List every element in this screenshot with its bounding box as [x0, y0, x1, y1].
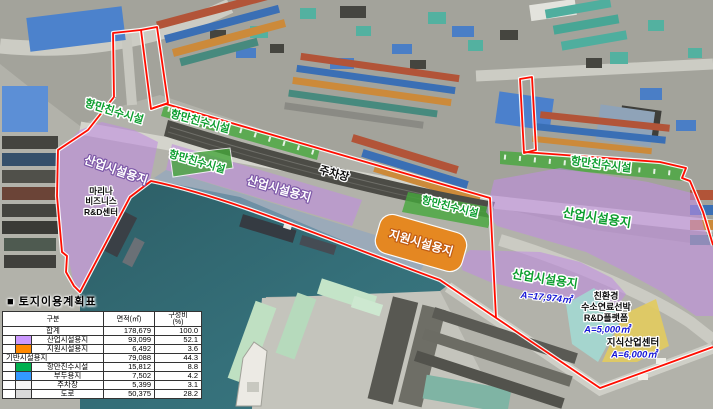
- cell-ratio: 3.6: [155, 345, 202, 354]
- cell-area: 79,088: [104, 354, 155, 363]
- label-marina-line1: 마리나: [89, 186, 113, 196]
- cell-indent: [3, 336, 16, 345]
- cell-ratio: 44.3: [155, 354, 202, 363]
- table-row: 도로 50,375 28.2: [3, 390, 202, 399]
- table-row: 주차장 5,399 3.1: [3, 381, 202, 390]
- cell-ratio: 3.1: [155, 381, 202, 390]
- title-bullet-icon: ■: [7, 296, 15, 308]
- cell-swatch-waterfront: [16, 363, 32, 372]
- cell-indent: [3, 372, 16, 381]
- header-category: 구분: [3, 312, 104, 327]
- cell-label: 항만친수시설: [32, 363, 104, 372]
- cell-indent: [3, 345, 16, 354]
- cell-label: 주차장: [32, 381, 104, 390]
- table-row: 부두용지 7,502 4.2: [3, 372, 202, 381]
- cell-label: 합계: [3, 327, 104, 336]
- table-row: 지원시설용지 6,492 3.6: [3, 345, 202, 354]
- cell-indent: [3, 363, 16, 372]
- label-knowledge-area: A=6,000㎡: [610, 349, 659, 361]
- land-use-table: 구분 면적(㎡) 구성비(%) 합계 178,679 100.0 산업시설용지 …: [2, 311, 202, 399]
- cell-swatch-support: [16, 345, 32, 354]
- cell-area: 7,502: [104, 372, 155, 381]
- land-use-plan-map: 항만친수시설 항만친수시설 항만친수시설 항만친수시설 항만친수시설 산업시설용…: [0, 0, 713, 409]
- table-row: 기반시설용지 79,088 44.3: [3, 354, 202, 363]
- label-eco-line1: 친환경: [594, 290, 619, 301]
- cell-label: 기반시설용지: [3, 354, 104, 363]
- cell-label: 산업시설용지: [32, 336, 104, 345]
- label-eco-line3: R&D플랫폼: [584, 312, 628, 323]
- cell-label: 도로: [32, 390, 104, 399]
- cell-area: 50,375: [104, 390, 155, 399]
- cell-ratio: 52.1: [155, 336, 202, 345]
- land-use-table-panel: ■ 토지이용계획표 구분 면적(㎡) 구성비(%) 합계 178,679 100…: [2, 293, 208, 399]
- cell-swatch-industrial: [16, 336, 32, 345]
- label-marina-line3: R&D센터: [84, 207, 118, 217]
- table-row: 항만친수시설 15,812 8.8: [3, 363, 202, 372]
- label-knowledge-name: 지식산업센터: [607, 337, 659, 349]
- cell-ratio: 8.8: [155, 363, 202, 372]
- cell-indent: [3, 381, 16, 390]
- table-title-text: 토지이용계획표: [19, 296, 97, 308]
- cell-ratio: 4.2: [155, 372, 202, 381]
- cell-label: 지원시설용지: [32, 345, 104, 354]
- table-row: 산업시설용지 93,099 52.1: [3, 336, 202, 345]
- label-eco-area: A=5,000㎡: [583, 324, 632, 336]
- table-title: ■ 토지이용계획표: [7, 293, 208, 309]
- label-marina-line2: 비즈니스: [85, 196, 116, 206]
- cell-area: 93,099: [104, 336, 155, 345]
- cell-swatch-wharf: [16, 372, 32, 381]
- label-eco-line2: 수소연료선박: [581, 301, 631, 312]
- cell-swatch-parking: [16, 381, 32, 390]
- cell-area: 5,399: [104, 381, 155, 390]
- header-ratio: 구성비(%): [155, 312, 202, 327]
- table-row: 합계 178,679 100.0: [3, 327, 202, 336]
- cell-area: 6,492: [104, 345, 155, 354]
- table-header-row: 구분 면적(㎡) 구성비(%): [3, 312, 202, 327]
- header-area: 면적(㎡): [104, 312, 155, 327]
- cell-ratio: 100.0: [155, 327, 202, 336]
- cell-ratio: 28.2: [155, 390, 202, 399]
- cell-swatch-road: [16, 390, 32, 399]
- cell-label: 부두용지: [32, 372, 104, 381]
- cell-area: 15,812: [104, 363, 155, 372]
- cell-area: 178,679: [104, 327, 155, 336]
- cell-indent: [3, 390, 16, 399]
